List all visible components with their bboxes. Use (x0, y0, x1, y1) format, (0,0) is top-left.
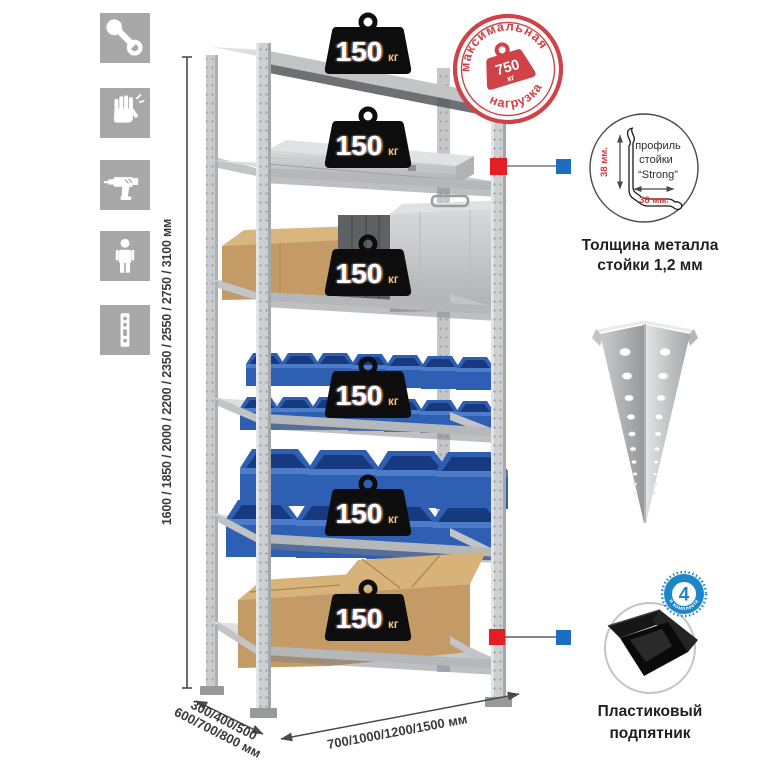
foot-caption-2: подпятник (609, 725, 690, 742)
red-marker-square (490, 158, 507, 175)
max-load-stamp: максимальная нагрузка 750 кг (442, 3, 574, 135)
drill-feature (100, 160, 150, 210)
assembly-feature (100, 13, 150, 63)
gloves-icon (103, 91, 147, 135)
thickness-caption-2: стойки 1,2 мм (597, 257, 702, 274)
shelf-4-load: 150 (336, 380, 383, 411)
profile-label-1: профиль (635, 140, 681, 152)
gloves-feature (100, 88, 150, 138)
profile-label-3: “Strong” (638, 169, 678, 181)
infographic-page: 1600 / 1850 / 2000 / 2200 / 2350 / 2550 … (0, 0, 765, 765)
foot-detail-circle: 4 в комплекте (605, 572, 706, 693)
shelf-3-load: 150 (336, 258, 383, 289)
profile-bottom-dim: 38 мм. (639, 195, 669, 206)
blue-marker-square (556, 159, 571, 174)
person-feature (100, 231, 150, 281)
blue-marker-square-bottom (556, 630, 571, 645)
thickness-caption-1: Толщина металла (582, 237, 719, 254)
count-badge-number: 4 (679, 585, 690, 606)
drill-icon (103, 163, 147, 207)
weight-badge-2: 150 кг (325, 109, 411, 168)
shelf-2-load: 150 (336, 130, 383, 161)
upright-icon (103, 308, 147, 352)
upright-feature (100, 305, 150, 355)
profile-side-dim: 38 мм. (599, 147, 610, 177)
foot-connector (489, 629, 571, 645)
shelf-6-load-unit: кг (388, 619, 399, 631)
shelf-5-load: 150 (336, 498, 383, 529)
height-dimension: 1600 / 1850 / 2000 / 2200 / 2350 / 2550 … (160, 57, 192, 688)
depth-dimension: 300/400/500 600/700/800 мм (172, 692, 270, 761)
weight-badge-1: 150 кг (325, 15, 411, 74)
shelf-2-load-unit: кг (388, 146, 399, 158)
shelf-1-load: 150 (336, 36, 383, 67)
width-dimension: 700/1000/1200/1500 мм (281, 694, 519, 752)
foot-caption-1: Пластиковый (598, 703, 703, 720)
height-dimension-label: 1600 / 1850 / 2000 / 2200 / 2350 / 2550 … (160, 219, 174, 525)
red-marker-square-bottom (489, 629, 505, 645)
shelf-4-load-unit: кг (388, 396, 399, 408)
profile-detail-circle: 38 мм. 38 мм. профиль стойки “Strong” (590, 114, 698, 222)
person-icon (103, 234, 147, 278)
shelf-5-load-unit: кг (388, 514, 399, 526)
shelf-1-load-unit: кг (388, 52, 399, 64)
back-left-post (200, 55, 224, 695)
wrench-icon (103, 16, 147, 60)
corner-post-image (592, 322, 698, 523)
profile-label-2: стойки (639, 154, 673, 166)
shelf-3-load-unit: кг (388, 274, 399, 286)
profile-connector (490, 158, 571, 175)
shelf-6-load: 150 (336, 603, 383, 634)
